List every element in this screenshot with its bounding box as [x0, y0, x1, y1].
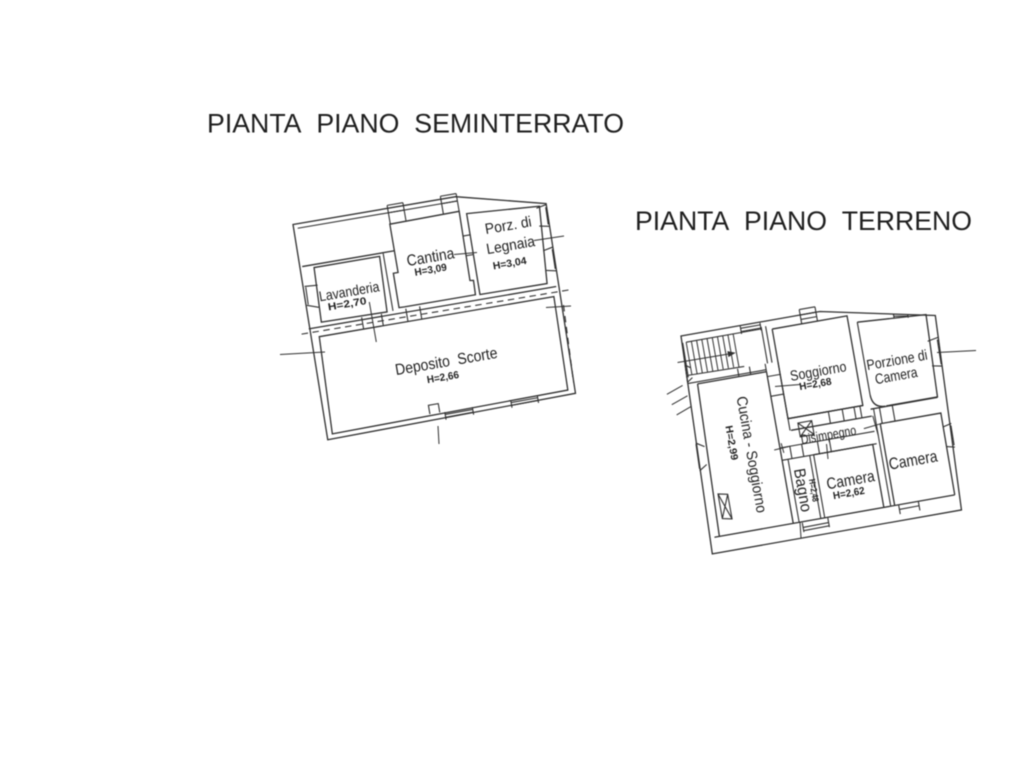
svg-text:PIANTA PIANO SEMINTERRATO: PIANTA PIANO SEMINTERRATO: [207, 109, 624, 139]
svg-text:PIANTA PIANO TERRENO: PIANTA PIANO TERRENO: [635, 206, 972, 236]
